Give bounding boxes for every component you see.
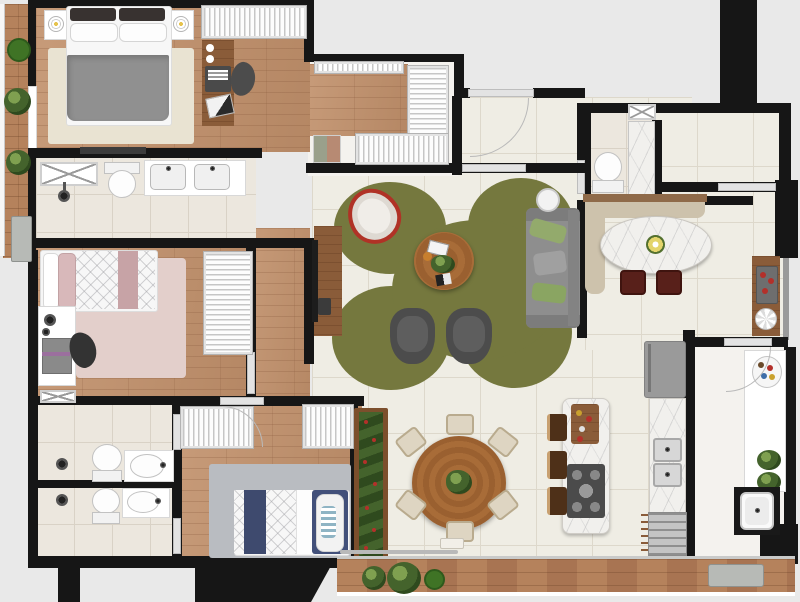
faucet-master-right xyxy=(210,166,215,171)
table-plant-centerpiece xyxy=(446,470,472,494)
pink-headphones-2 xyxy=(42,328,50,336)
closet-rack-bottom xyxy=(356,134,448,164)
shower-mixer-bath3 xyxy=(56,494,68,506)
pink-quilt xyxy=(76,251,118,309)
flower-planter-flowers xyxy=(364,420,368,424)
oven xyxy=(648,512,687,556)
navy-band xyxy=(244,490,266,554)
powder-marble-shower xyxy=(628,121,655,198)
coffee-table-plant xyxy=(431,255,455,273)
pink-headphones xyxy=(44,314,56,326)
pink-room-door xyxy=(247,352,255,394)
service-plant-1 xyxy=(757,450,781,470)
lamp-left xyxy=(48,16,64,32)
blue-room-door xyxy=(220,397,264,405)
kitchen-floor-tray xyxy=(440,538,464,549)
shower-mixer-master xyxy=(58,190,70,202)
toilet-master xyxy=(108,170,136,198)
bar-stool-3 xyxy=(547,487,567,515)
banquette-back xyxy=(583,194,707,202)
bath-3-door xyxy=(173,518,181,554)
hallway-floor xyxy=(248,228,310,420)
dining-chair-1 xyxy=(620,270,646,295)
kitchen-sink-2-drain xyxy=(665,472,670,477)
headboard-pillow-2 xyxy=(119,8,165,21)
toilet-bath2 xyxy=(92,444,122,472)
tv-remote xyxy=(318,298,331,315)
pink-laptop-stripe xyxy=(42,352,70,356)
bath-2-door xyxy=(173,414,181,450)
utensils xyxy=(641,514,648,552)
pink-wardrobe xyxy=(204,252,252,354)
bar-stool-2 xyxy=(547,451,567,479)
deck-glass-rail xyxy=(340,550,458,554)
sofa-back xyxy=(568,210,579,326)
balcony-rail xyxy=(0,4,5,256)
faucet-bath2 xyxy=(160,462,166,468)
wall-bath-master-south xyxy=(36,238,314,248)
faucet-master-left xyxy=(166,166,171,171)
flower-planter-green xyxy=(359,412,383,556)
floor-plan-canvas xyxy=(0,0,800,602)
blue-wardrobe-right xyxy=(303,405,353,448)
duct-shaft-left xyxy=(40,390,76,403)
deck-plant-2 xyxy=(387,562,421,594)
side-table xyxy=(536,188,560,212)
balcony-plant-2 xyxy=(4,88,31,115)
cream-chair-top xyxy=(446,414,474,435)
deck-plant-3 xyxy=(424,569,445,590)
kitchen-sink-1-drain xyxy=(665,447,670,452)
folded-clothes xyxy=(313,135,341,163)
balcony-planter-tray xyxy=(11,216,32,262)
drink-tray xyxy=(756,266,778,304)
toilet-powder xyxy=(594,152,622,182)
column-bottom-left xyxy=(58,566,80,602)
wall-bedroom-south xyxy=(36,148,262,158)
deck-plant-1 xyxy=(362,566,386,590)
desk-decor-knobs xyxy=(206,44,214,52)
blue-fold xyxy=(296,490,313,554)
tv-panel-master xyxy=(80,147,146,154)
pink-band xyxy=(118,251,138,309)
entry-door xyxy=(468,89,534,97)
headboard-pillow-1 xyxy=(70,8,116,21)
balcony-plant-1 xyxy=(7,38,31,62)
toilet-bath3 xyxy=(92,488,120,514)
closet-rack-top xyxy=(315,62,403,73)
lamp-right xyxy=(173,16,189,32)
tv-console xyxy=(314,226,342,336)
pink-pillow-1 xyxy=(43,253,59,309)
sink-bath2 xyxy=(130,454,164,478)
armchair-2-seat xyxy=(453,316,485,352)
wall-powder-entry xyxy=(577,103,585,165)
shower-box-master xyxy=(40,162,98,186)
wall-right-upper xyxy=(779,103,791,183)
pillow-1 xyxy=(70,23,118,42)
wall-closet-right xyxy=(452,96,462,175)
pink-quilt-2 xyxy=(138,251,155,309)
column-top-right xyxy=(720,0,757,108)
closet-wood-patch xyxy=(308,64,408,136)
pink-laptop xyxy=(42,338,72,374)
dining-chair-2 xyxy=(656,270,682,295)
striped-pillow xyxy=(321,506,336,538)
console-fan xyxy=(755,308,777,330)
master-wardrobe xyxy=(202,6,306,38)
sofa-pillow-gray xyxy=(533,250,568,276)
wall-entry-top-right xyxy=(533,88,585,98)
toilet-tank-bath3 xyxy=(92,512,120,524)
pillow-2 xyxy=(119,23,167,42)
duct-shaft-powder xyxy=(628,104,656,120)
laptop-screen xyxy=(208,70,228,80)
balcony-plant-3 xyxy=(6,150,31,175)
flower-centerpiece xyxy=(646,235,665,254)
wall-top-right xyxy=(583,103,783,113)
wall-left-lower xyxy=(28,250,38,568)
drink-tray-cups xyxy=(760,272,766,278)
cutting-board-food xyxy=(576,410,582,416)
laundry-tub-drain xyxy=(755,508,760,513)
service-door xyxy=(724,338,772,346)
pink-pillow-2 xyxy=(58,253,76,309)
hall-living-door xyxy=(462,164,526,172)
bar-stool-1 xyxy=(547,414,567,441)
wall-right-glass xyxy=(783,258,789,340)
fridge-handle xyxy=(648,344,651,392)
faucet-bath3 xyxy=(155,498,161,504)
wall-living-top xyxy=(306,163,586,173)
shower-mixer-bath2 xyxy=(56,458,68,470)
shower-arm-master xyxy=(63,182,66,191)
deck-planter-tray xyxy=(708,564,764,587)
toilet-tank-powder xyxy=(592,180,624,193)
cutting-board xyxy=(571,404,599,444)
wall-closet-top xyxy=(304,54,464,62)
master-duvet xyxy=(67,55,169,121)
armchair-1-seat xyxy=(397,316,428,352)
service-hall-door xyxy=(718,183,776,191)
cooktop xyxy=(567,464,605,518)
coffee-table-orange xyxy=(423,252,432,261)
toilet-tank-bath2 xyxy=(92,470,122,482)
